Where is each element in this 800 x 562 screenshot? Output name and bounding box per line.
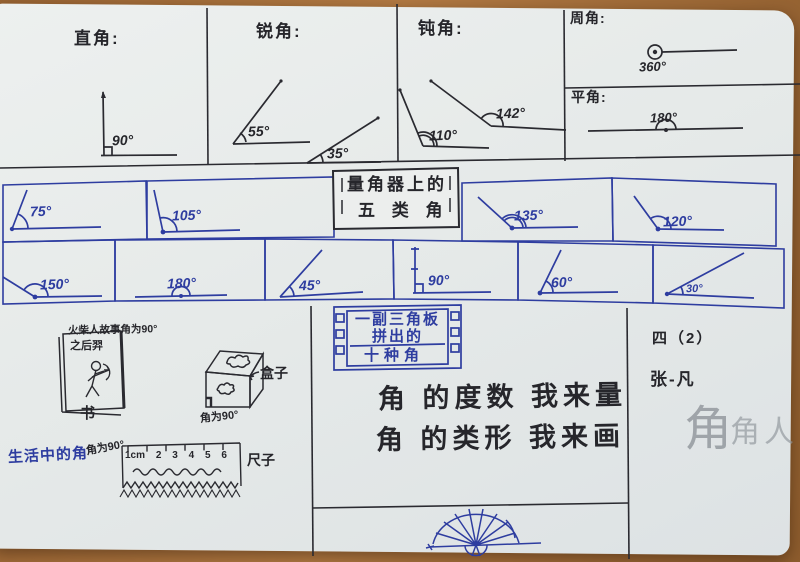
deg-label-150: 150°	[40, 276, 69, 291]
straight-angle-deg-label: 180°	[650, 111, 677, 125]
gift-box-drawing	[206, 351, 263, 407]
obtuse-142-deg-label: 142°	[496, 105, 525, 120]
stick-figure-drawing	[86, 362, 110, 398]
ink-drawings	[0, 0, 800, 562]
board-line1: 一副三角板	[355, 312, 440, 327]
deg-label-180: 180°	[167, 275, 196, 290]
board-line2: 拼出的	[372, 329, 423, 344]
straight-angle-title: 平角:	[571, 90, 607, 104]
fan-drawing	[426, 509, 541, 556]
class-name: 四（2）	[652, 331, 713, 346]
slogan-line1: 角 的度数 我来量	[378, 382, 627, 413]
obtuse-110-deg-label: 110°	[429, 128, 457, 143]
poster-photo: 直角: 90° 锐角: 55° 35° 钝角: 110° 142° 周角: 36…	[0, 0, 800, 562]
book-label: 书	[80, 406, 95, 421]
deg-label-135: 135°	[514, 207, 543, 222]
student-name: 张-凡	[650, 371, 696, 388]
deg-label-60: 60°	[551, 275, 573, 290]
board-line3: 十种角	[364, 348, 424, 363]
deg-label-90: 90°	[428, 273, 450, 288]
angle-45-drawing	[280, 250, 363, 297]
full-angle-title: 周角:	[570, 11, 606, 25]
right-angle-title: 直角:	[74, 30, 120, 47]
slogan-line2: 角 的类形 我来画	[376, 423, 625, 454]
ruler-scale: 1cm 2 3 4 5 6	[125, 450, 227, 461]
protractor-title-line1: 量角器上的	[347, 176, 447, 193]
grid-lines	[0, 4, 800, 559]
ruler-mark-2: 2	[156, 450, 162, 461]
acute-55-deg-label: 55°	[248, 124, 270, 139]
ruler-mark-6: 6	[221, 450, 227, 461]
right-angle-deg-label: 90°	[112, 133, 134, 148]
acute-angle-55-drawing	[233, 79, 310, 144]
angle-75-drawing	[10, 190, 101, 231]
ruler-label: 尺子	[247, 453, 275, 467]
deg-label-30: 30°	[686, 284, 703, 296]
deg-label-120: 120°	[663, 213, 692, 228]
deg-label-75: 75°	[30, 204, 52, 219]
angle-90-drawing	[411, 247, 491, 293]
ruler-mark-3: 3	[172, 450, 178, 461]
acute-angle-title: 锐角:	[256, 23, 302, 40]
ruler-mark-1cm: 1cm	[125, 450, 145, 461]
book-note-line1: 火柴人故事角为90°	[68, 324, 158, 336]
ruler-mark-5: 5	[205, 450, 211, 461]
life-angles-title: 生活中的角	[8, 446, 89, 465]
full-angle-deg-label: 360°	[639, 60, 666, 74]
pencil-doodle-large: 角	[684, 406, 732, 454]
gift-box-label: 盒子	[260, 366, 288, 380]
deg-label-105: 105°	[172, 207, 201, 222]
angle-30-drawing	[665, 253, 754, 298]
acute-35-deg-label: 35°	[327, 146, 349, 161]
protractor-title-line2: 五 类 角	[358, 202, 448, 219]
full-angle-drawing	[648, 45, 737, 59]
deg-label-45: 45°	[299, 278, 321, 293]
angle-60-drawing	[538, 250, 618, 295]
pencil-doodle-small: 角人	[730, 418, 798, 448]
ruler-mark-4: 4	[189, 450, 195, 461]
obtuse-angle-title: 钝角:	[418, 20, 464, 37]
book-note-line2: 之后羿	[70, 341, 103, 352]
